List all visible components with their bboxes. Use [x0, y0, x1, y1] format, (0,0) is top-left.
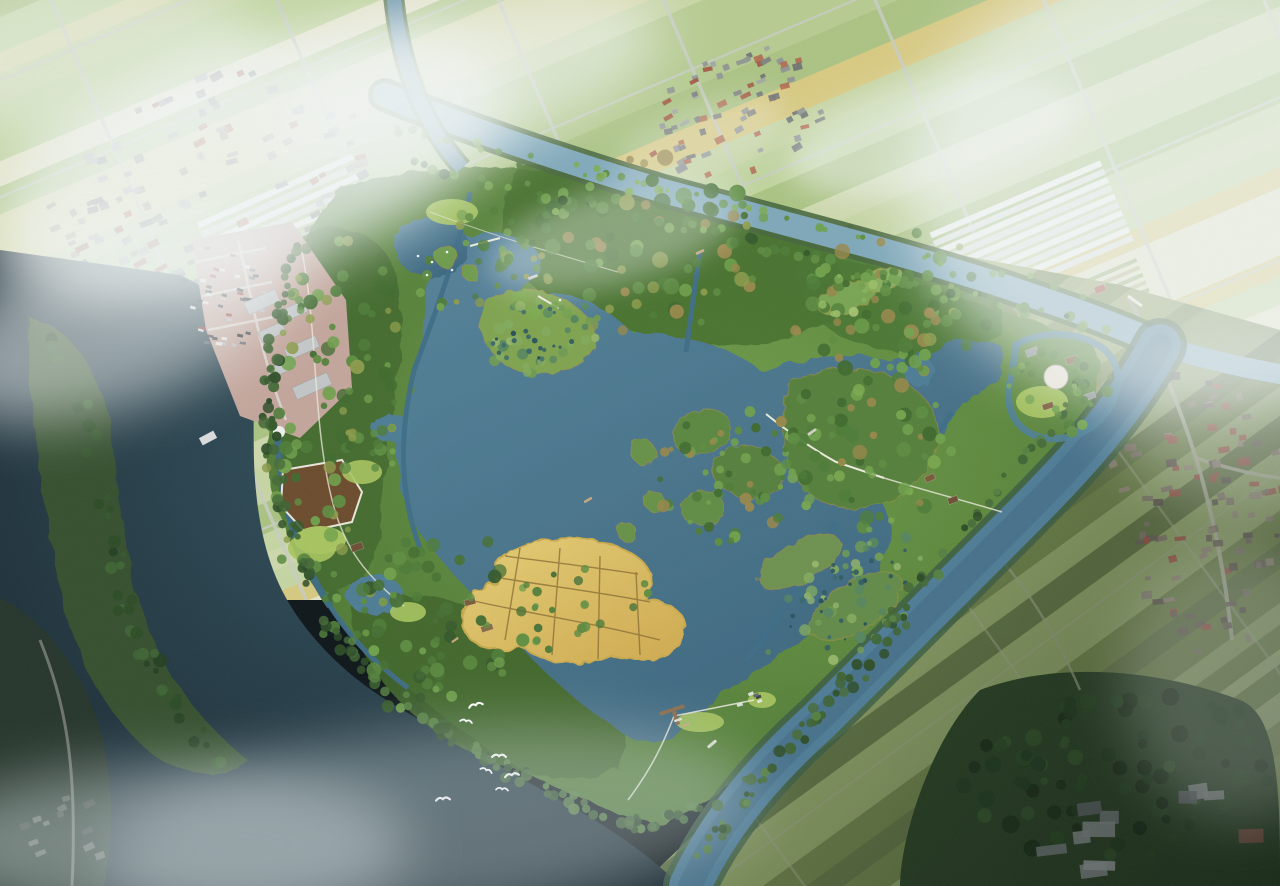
film-grain [0, 0, 1280, 886]
aerial-rendering [0, 0, 1280, 886]
scene-canvas [0, 0, 1280, 886]
